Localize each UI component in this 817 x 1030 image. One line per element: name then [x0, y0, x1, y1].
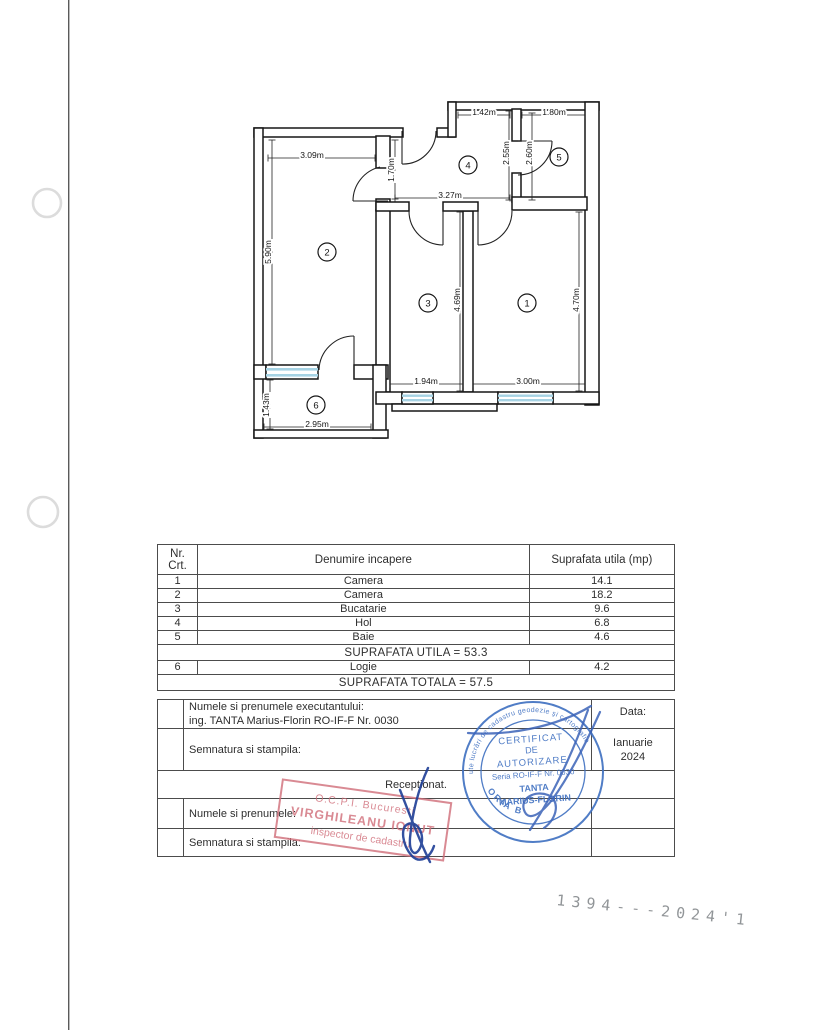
- room-number: 5: [556, 152, 561, 163]
- floor-plan-doors: [319, 131, 552, 370]
- date-year: 2024: [596, 750, 670, 764]
- punch-hole: [33, 189, 61, 217]
- row-number: 1: [158, 575, 198, 589]
- dimension-label: 5.90m: [263, 240, 273, 264]
- punch-hole: [28, 497, 58, 527]
- floor-plan-walls: [254, 102, 599, 438]
- suprafata-utila-row: SUPRAFATA UTILA = 53.3: [158, 645, 675, 661]
- suprafata-totala-row: SUPRAFATA TOTALA = 57.5: [158, 675, 675, 691]
- stub-cell: [158, 700, 184, 729]
- receiver-name-label-cell: Numele si prenumele:: [184, 799, 592, 829]
- room-number: 2: [324, 247, 329, 258]
- room-area: 18.2: [529, 589, 674, 603]
- executant-cell: Numele si prenumele executantului: ing. …: [184, 700, 592, 729]
- column-header: Nr. Crt.: [158, 545, 198, 575]
- row-number: 2: [158, 589, 198, 603]
- room-number: 6: [313, 400, 318, 411]
- receiver-signature-label-cell: Semnatura si stampila:: [184, 829, 592, 857]
- scan-number: 1394---2024'1: [556, 891, 752, 929]
- stub-cell: [158, 829, 184, 857]
- executant-label: Numele si prenumele executantului:: [189, 700, 587, 714]
- room-area: 6.8: [529, 617, 674, 631]
- signature-label-cell: Semnatura si stampila:: [184, 729, 592, 771]
- receptionat-cell: Receptionat.: [158, 771, 675, 799]
- svg-text:CATEGORIA B: CATEGORIA B: [0, 0, 525, 816]
- row-number: 5: [158, 631, 198, 645]
- date-cell: Ianuarie 2024: [591, 729, 674, 771]
- stub-cell: [158, 799, 184, 829]
- floor-plan-windows: [266, 365, 553, 404]
- date-month: Ianuarie: [596, 736, 670, 750]
- dimension-label: 3.27m: [438, 190, 462, 200]
- data-label-cell: Data:: [591, 700, 674, 729]
- dimension-label: 3.09m: [300, 150, 324, 160]
- stamps-layer: O.C.P.I. Bucuresti VIRGHILEANU IONUT ins…: [0, 0, 817, 1030]
- dimension-label: 1.42m: [472, 107, 496, 117]
- dimension-label: 1.80m: [542, 107, 566, 117]
- row-number: 6: [158, 661, 198, 675]
- dimension-label: 1.43m: [261, 393, 271, 417]
- empty-cell: [591, 829, 674, 857]
- blue-stamp-category: CATEGORIA B: [0, 0, 525, 816]
- room-number-circle: [318, 243, 336, 261]
- room-number: 4: [465, 160, 470, 171]
- row-number: 4: [158, 617, 198, 631]
- dimension-label: 3.00m: [516, 376, 540, 386]
- room-number-circle: [459, 156, 477, 174]
- rooms-table: Nr. Crt.Denumire incapereSuprafata utila…: [157, 544, 675, 691]
- column-header: Suprafata utila (mp): [529, 545, 674, 575]
- executant-value: ing. TANTA Marius-Florin RO-IF-F Nr. 003…: [189, 714, 587, 728]
- scan-edge-line: [68, 0, 69, 1030]
- room-name: Camera: [198, 589, 530, 603]
- room-number: 1: [524, 298, 529, 309]
- dimension-label: 4.70m: [571, 288, 581, 312]
- room-name: Bucatarie: [198, 603, 530, 617]
- dimension-label: 1.94m: [414, 376, 438, 386]
- dimension-label: 4.69m: [452, 288, 462, 312]
- room-number-circle: [550, 148, 568, 166]
- room-number: 3: [425, 298, 430, 309]
- room-number-circle: [518, 294, 536, 312]
- dimension-label: 2.95m: [305, 419, 329, 429]
- room-number-circle: [419, 294, 437, 312]
- signature-table: Numele si prenumele executantului: ing. …: [157, 699, 675, 857]
- floor-plan-room-numbers: 123456: [307, 148, 568, 414]
- room-name: Baie: [198, 631, 530, 645]
- dimension-label: 2.60m: [524, 141, 534, 165]
- scanned-cadastral-document: { "page": { "scan_number": "1394---2024'…: [0, 0, 817, 1030]
- stub-cell: [158, 729, 184, 771]
- dimension-label: 1.70m: [386, 158, 396, 182]
- floor-plan-layer: 3.09m5.90m1.42m1.80m1.70m2.55m2.60m3.27m…: [0, 0, 817, 1030]
- room-area: 14.1: [529, 575, 674, 589]
- room-name: Hol: [198, 617, 530, 631]
- room-area: 9.6: [529, 603, 674, 617]
- empty-cell: [591, 799, 674, 829]
- dimension-label: 2.55m: [501, 141, 511, 165]
- room-name: Camera: [198, 575, 530, 589]
- row-number: 3: [158, 603, 198, 617]
- column-header: Denumire incapere: [198, 545, 530, 575]
- room-number-circle: [307, 396, 325, 414]
- room-name: Logie: [198, 661, 530, 675]
- room-area: 4.2: [529, 661, 674, 675]
- room-area: 4.6: [529, 631, 674, 645]
- floor-plan-dimensions: 3.09m5.90m1.42m1.80m1.70m2.55m2.60m3.27m…: [261, 107, 585, 431]
